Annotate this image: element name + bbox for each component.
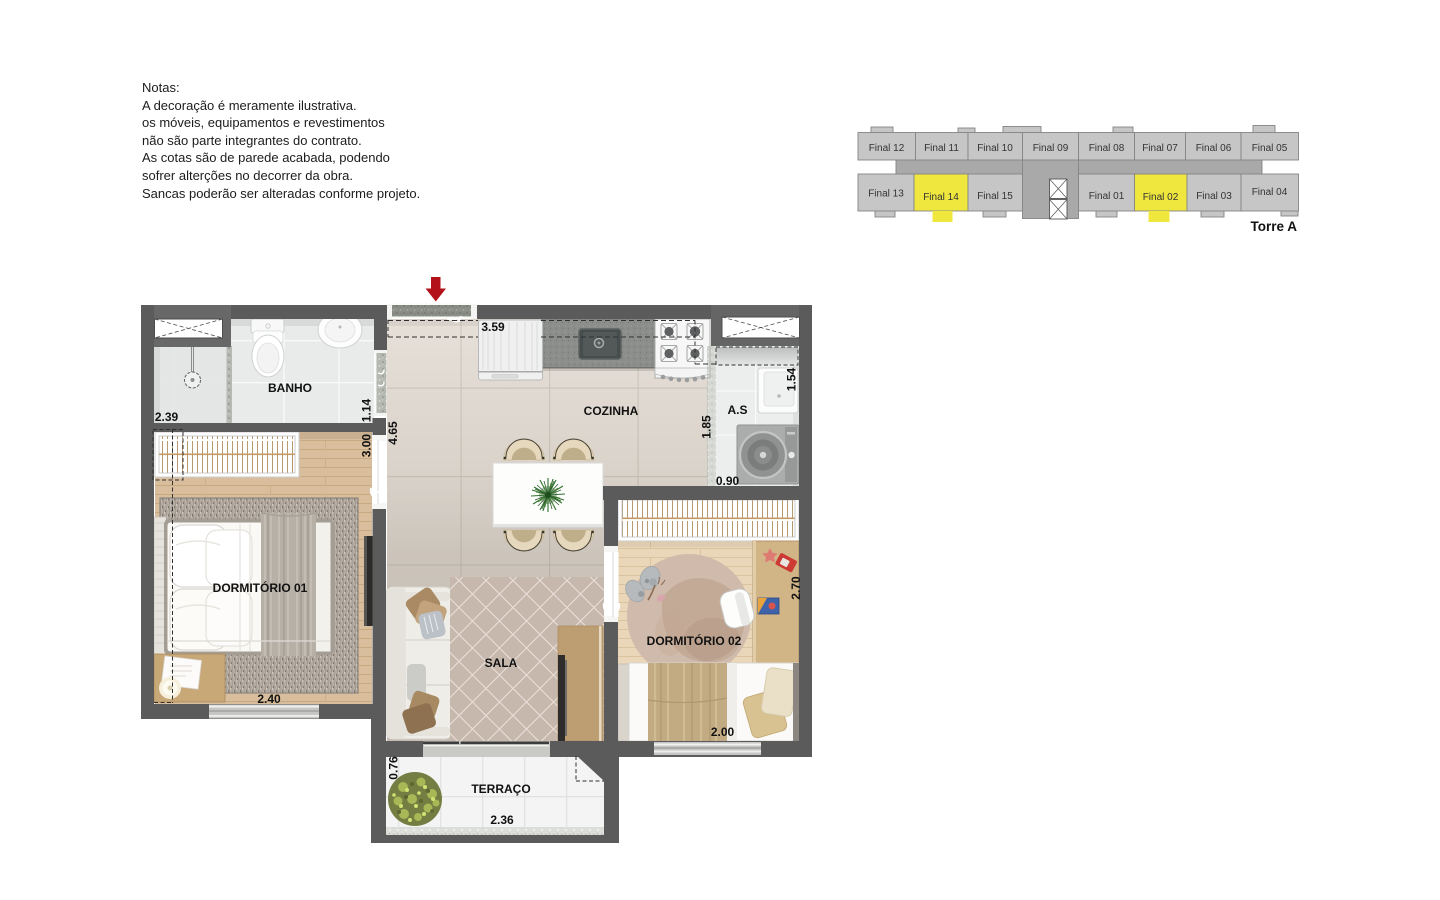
svg-text:Final 04: Final 04 — [1252, 187, 1288, 198]
svg-text:2.00: 2.00 — [711, 725, 735, 739]
svg-text:Final 09: Final 09 — [1033, 143, 1069, 154]
svg-text:DORMITÓRIO 02: DORMITÓRIO 02 — [647, 633, 742, 648]
svg-text:Final 13: Final 13 — [868, 189, 904, 200]
svg-text:0.76: 0.76 — [387, 756, 401, 780]
svg-text:Final 12: Final 12 — [869, 143, 905, 154]
svg-text:Final 02: Final 02 — [1143, 192, 1179, 203]
svg-text:2.70: 2.70 — [789, 576, 803, 600]
svg-text:Torre A: Torre A — [1250, 219, 1297, 234]
svg-text:BANHO: BANHO — [268, 381, 312, 395]
svg-text:Final 11: Final 11 — [924, 143, 959, 154]
svg-text:0.90: 0.90 — [716, 474, 740, 488]
svg-text:2.40: 2.40 — [257, 692, 281, 706]
svg-text:Final 03: Final 03 — [1196, 191, 1232, 202]
svg-text:Final 05: Final 05 — [1252, 143, 1288, 154]
svg-text:1.54: 1.54 — [785, 367, 799, 391]
svg-text:1.14: 1.14 — [360, 398, 374, 422]
svg-text:4.65: 4.65 — [386, 421, 400, 445]
svg-text:Final 14: Final 14 — [923, 192, 959, 203]
svg-text:Final 10: Final 10 — [977, 143, 1013, 154]
svg-text:3.00: 3.00 — [360, 434, 374, 458]
svg-text:TERRAÇO: TERRAÇO — [471, 782, 530, 796]
svg-text:SALA: SALA — [485, 656, 518, 670]
svg-text:A.S: A.S — [727, 403, 747, 417]
svg-text:Final 08: Final 08 — [1089, 143, 1125, 154]
svg-text:1.85: 1.85 — [700, 415, 714, 439]
svg-text:Final 01: Final 01 — [1089, 191, 1125, 202]
svg-text:2.36: 2.36 — [490, 813, 514, 827]
svg-text:Final 07: Final 07 — [1142, 143, 1178, 154]
svg-text:Final 06: Final 06 — [1196, 143, 1232, 154]
svg-text:2.39: 2.39 — [155, 410, 179, 424]
svg-text:DORMITÓRIO 01: DORMITÓRIO 01 — [213, 580, 308, 595]
svg-text:COZINHA: COZINHA — [584, 404, 639, 418]
svg-text:Final 15: Final 15 — [977, 191, 1013, 202]
svg-text:3.59: 3.59 — [481, 320, 505, 334]
